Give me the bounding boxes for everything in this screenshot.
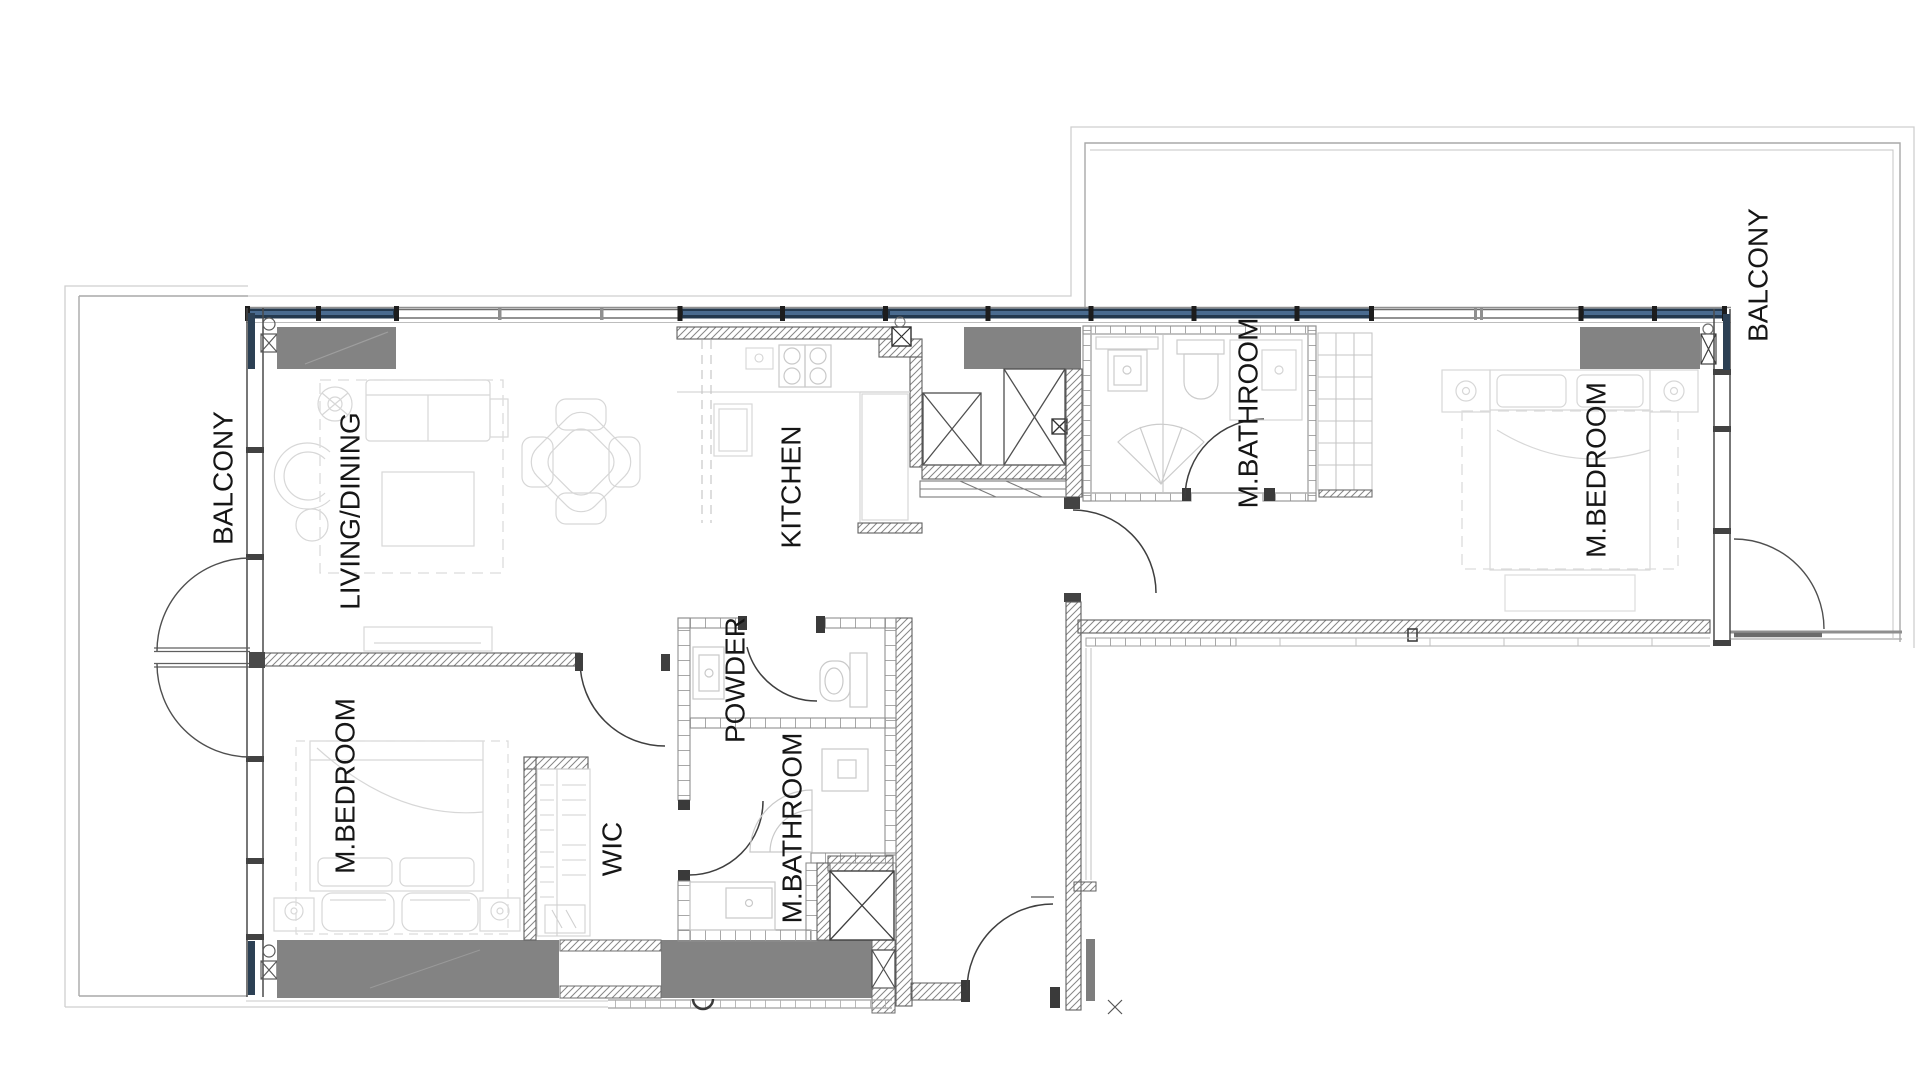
svg-text:BALCONY: BALCONY	[207, 411, 238, 545]
svg-text:KITCHEN: KITCHEN	[775, 426, 806, 549]
svg-text:M.BATHROOM: M.BATHROOM	[776, 733, 807, 924]
svg-text:POWDER: POWDER	[719, 617, 750, 743]
svg-text:M.BEDROOM: M.BEDROOM	[1580, 382, 1611, 558]
svg-text:BALCONY: BALCONY	[1742, 208, 1773, 342]
svg-text:LIVING/DINING: LIVING/DINING	[334, 412, 365, 610]
svg-text:M.BEDROOM: M.BEDROOM	[329, 698, 360, 874]
svg-text:WIC: WIC	[596, 822, 627, 876]
svg-text:M.BATHROOM: M.BATHROOM	[1232, 318, 1263, 509]
